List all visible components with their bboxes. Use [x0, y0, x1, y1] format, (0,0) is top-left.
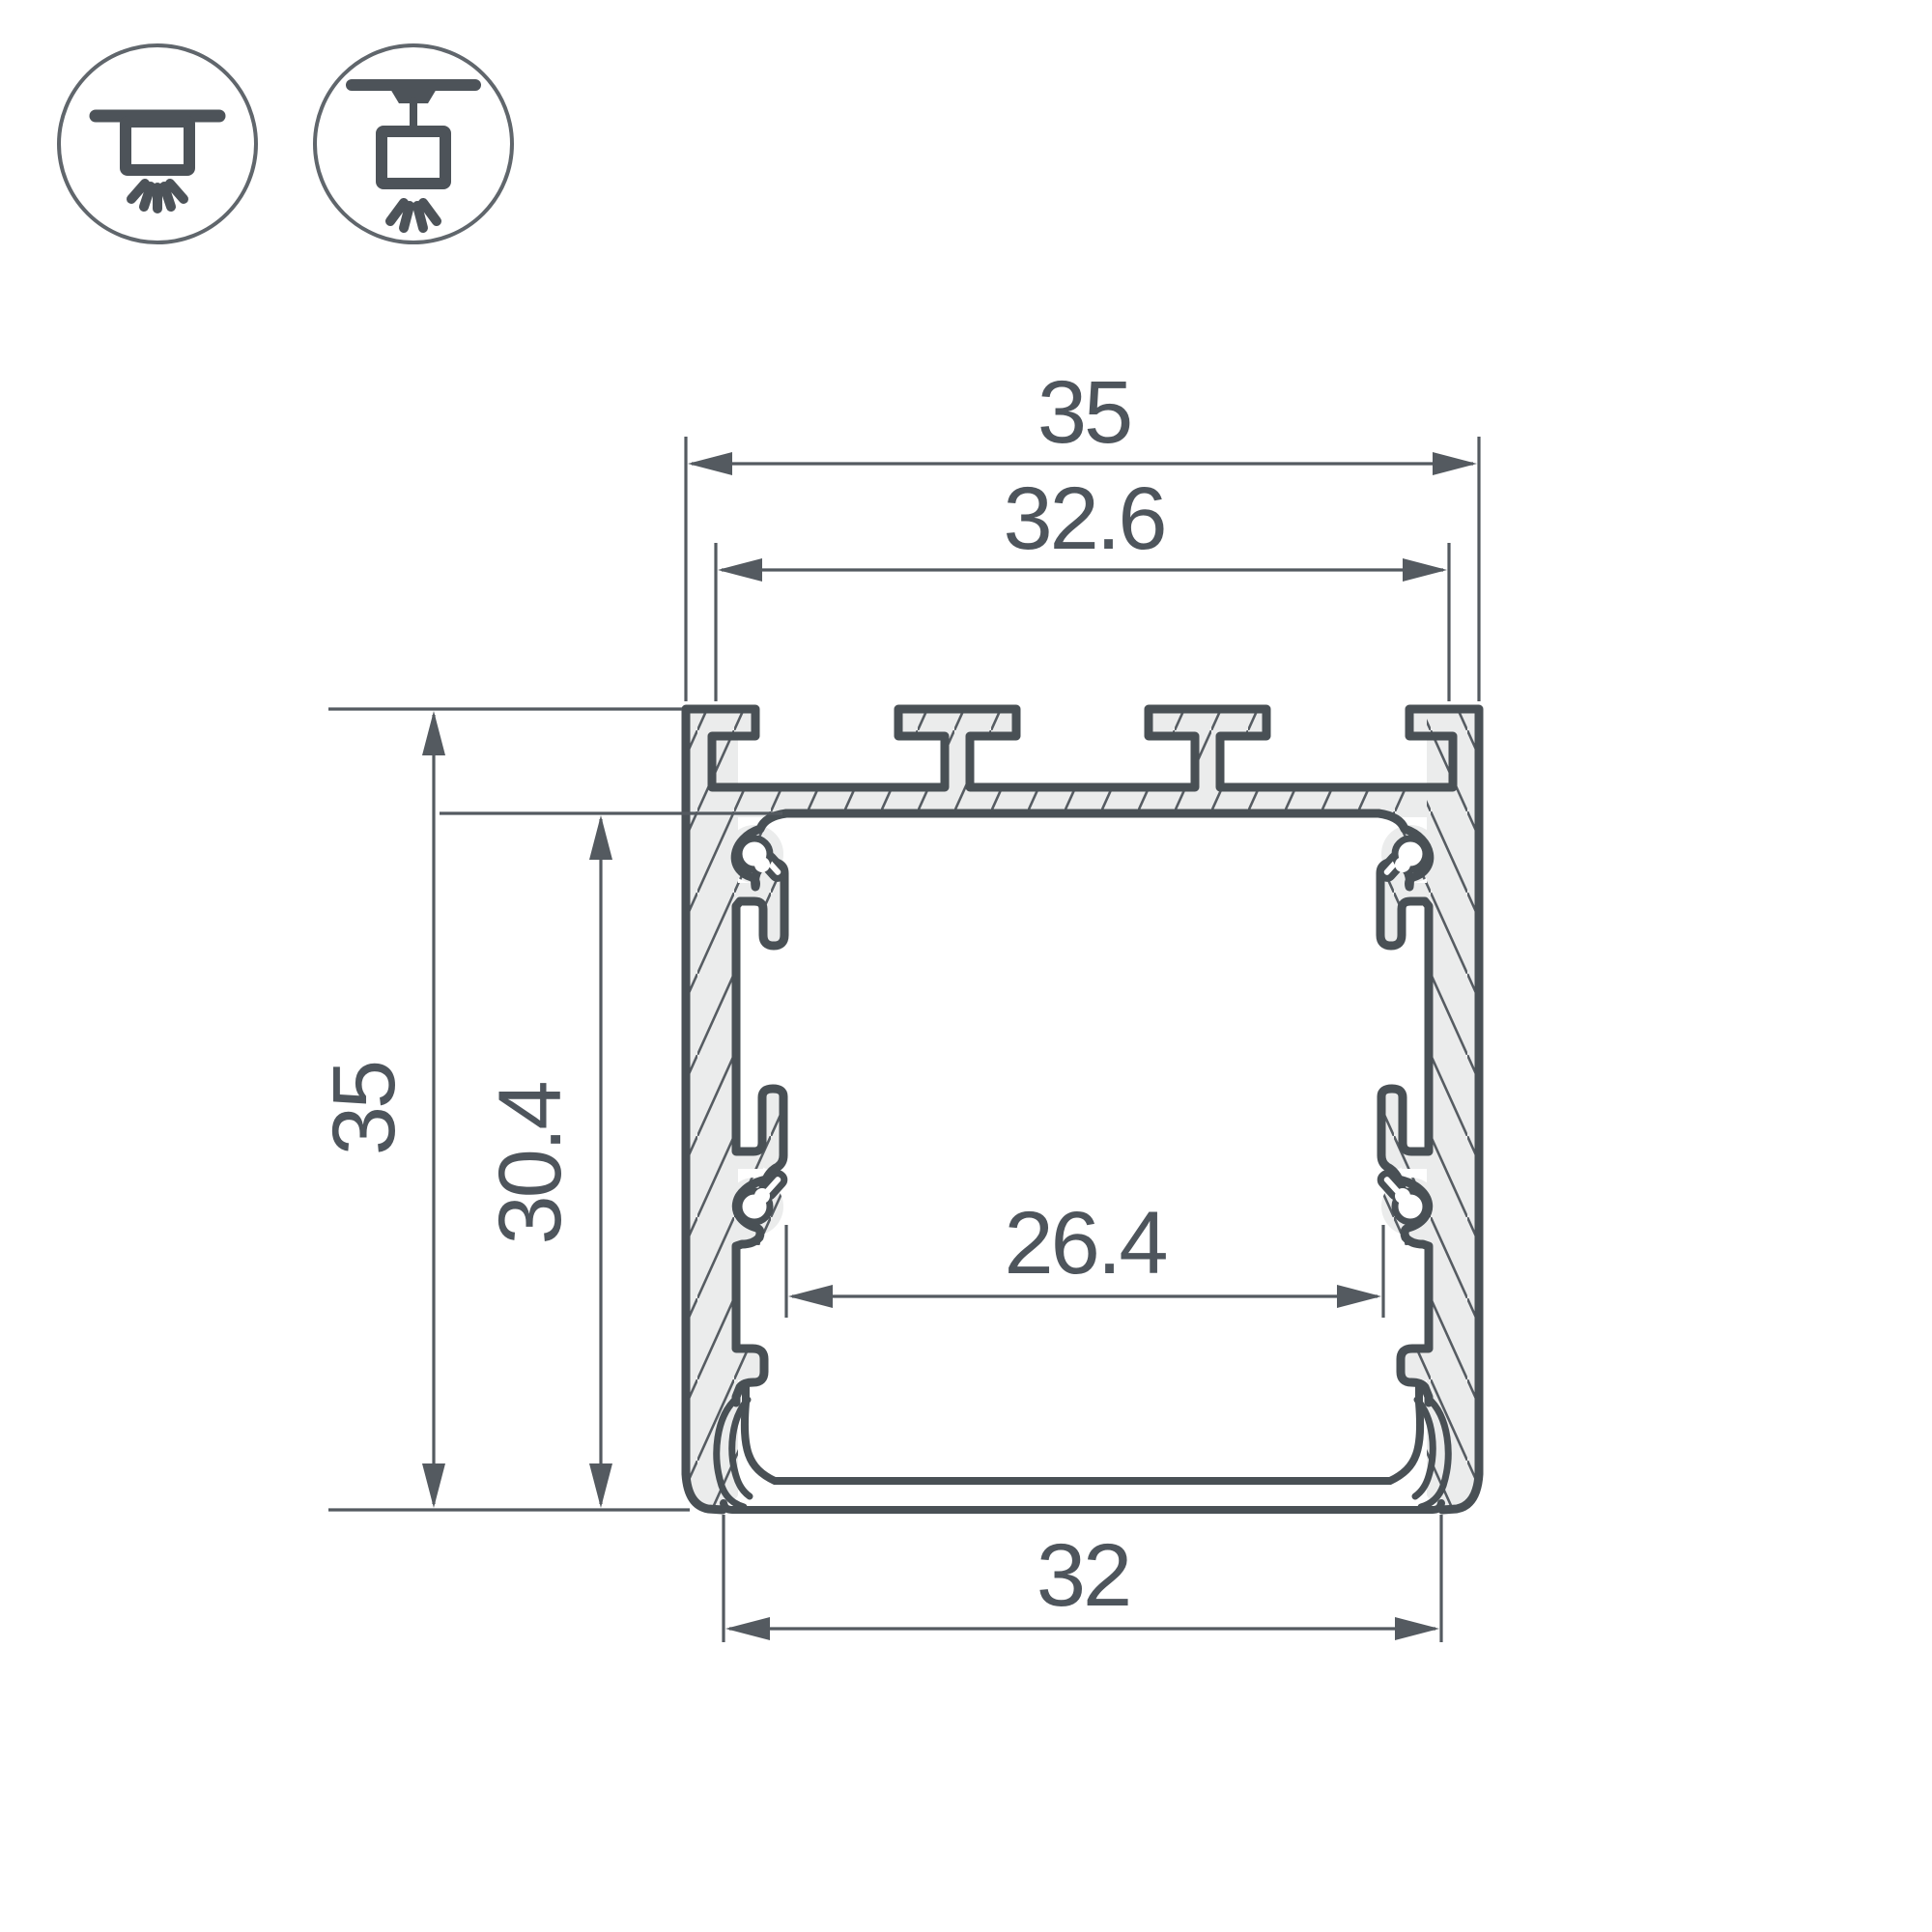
profile-side: [686, 709, 1083, 1510]
dimension-label: 32.6: [1003, 469, 1164, 568]
dimension-bottom-width: 32: [724, 1515, 1441, 1642]
light-rays-icon: [390, 203, 437, 228]
mount-type-icons: [59, 45, 512, 242]
profile-cross-section-drawing: 35 32.6 35 30.4: [0, 0, 1932, 1932]
dimension-label: 35: [315, 1063, 413, 1155]
luminaire-body: [126, 122, 189, 170]
diffuser-cover-bottom: [724, 1503, 1083, 1510]
dimension-label: 30.4: [481, 1083, 580, 1245]
surface-mount-icon: [59, 45, 256, 242]
pendant-mount-icon: [315, 45, 512, 242]
dimension-slot-span-width: 32.6: [716, 469, 1449, 701]
diffuser-cover-inner: [745, 1385, 1083, 1481]
side-wall-fill: [686, 711, 738, 1507]
light-rays-icon: [131, 184, 184, 209]
profile-body: [686, 709, 1479, 1510]
luminaire-body: [382, 131, 445, 184]
icon-circle: [315, 45, 512, 242]
dimension-inner-width: 26.4: [786, 1194, 1383, 1318]
top-plate-fill: [686, 709, 1479, 817]
dimension-label: 35: [1037, 363, 1130, 462]
profile-side-mirrored: [1083, 709, 1480, 1510]
dimensions: 35 32.6 35 30.4: [315, 363, 1479, 1642]
drawing-page: 35 32.6 35 30.4: [0, 0, 1932, 1932]
dimension-label: 32: [1037, 1526, 1129, 1625]
dimension-label: 26.4: [1004, 1194, 1166, 1293]
